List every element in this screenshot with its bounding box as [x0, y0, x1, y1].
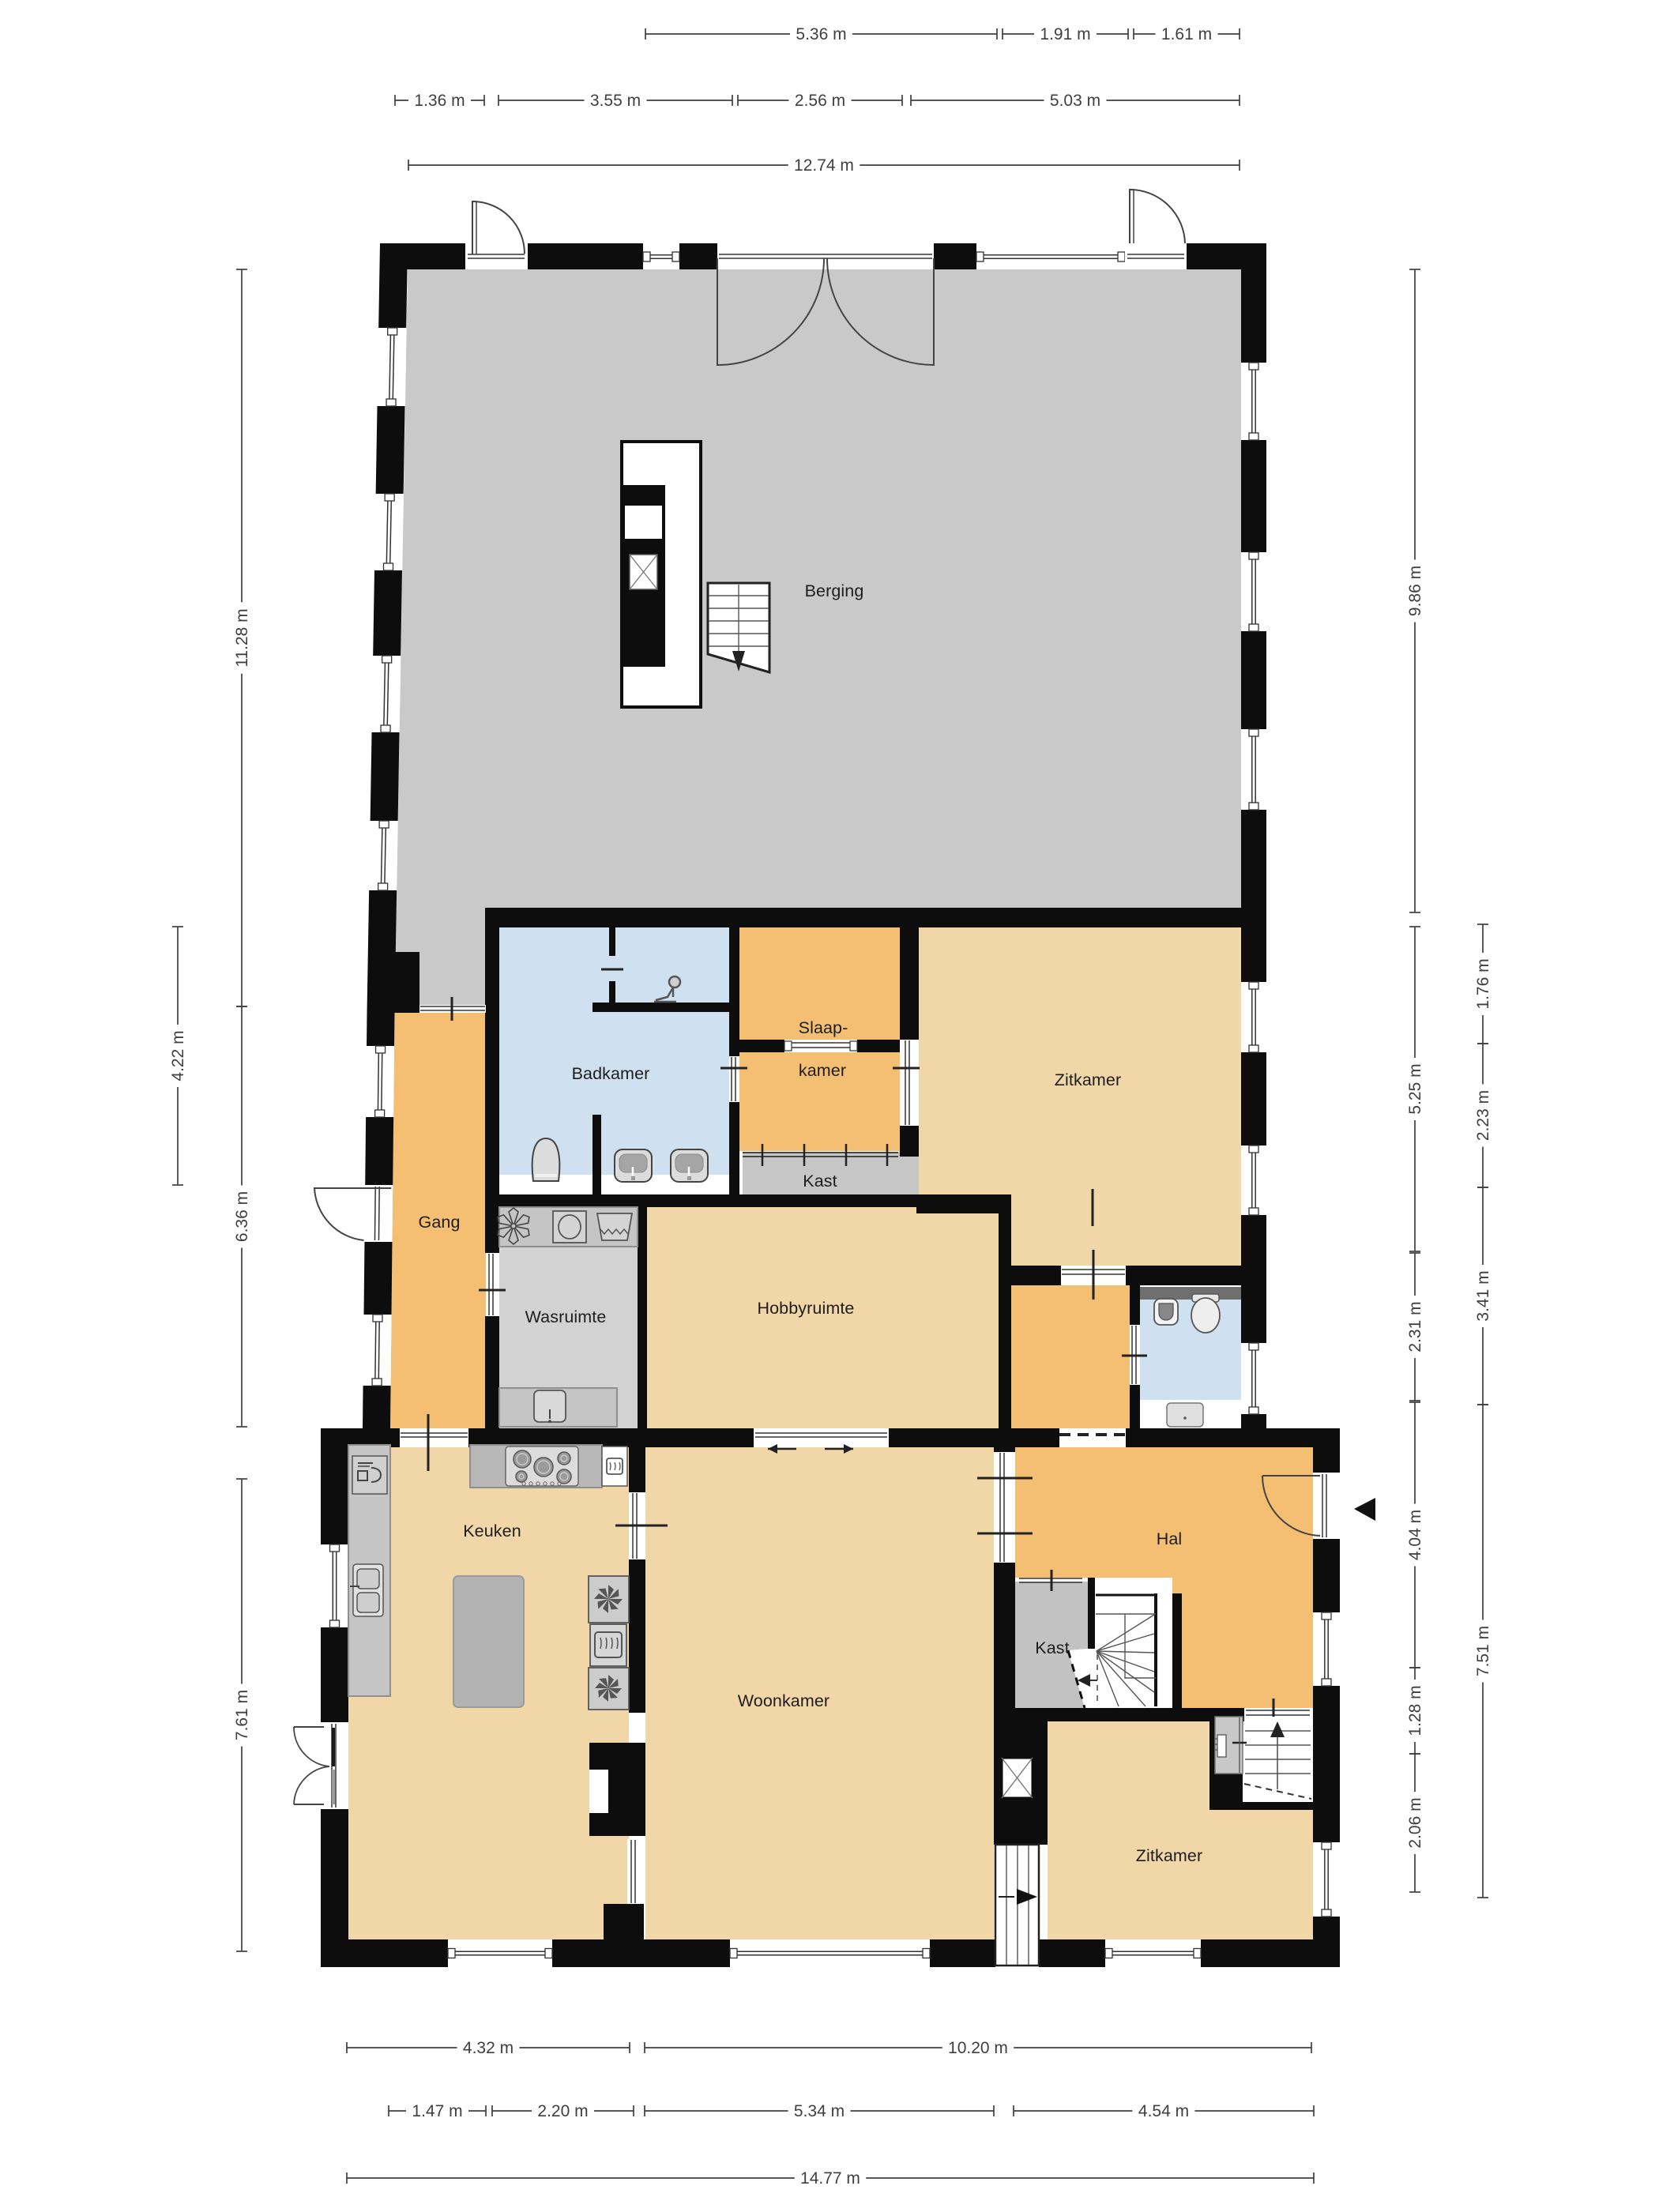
svg-text:2.06 m: 2.06 m [1406, 1797, 1424, 1848]
svg-text:11.28 m: 11.28 m [233, 608, 251, 667]
svg-text:5.34 m: 5.34 m [794, 2102, 845, 2120]
svg-text:14.77 m: 14.77 m [800, 2169, 860, 2188]
svg-text:Gang: Gang [419, 1213, 461, 1232]
svg-text:Wasruimte: Wasruimte [525, 1307, 607, 1326]
svg-text:Slaap-: Slaap- [799, 1018, 848, 1037]
svg-text:kamer: kamer [799, 1061, 846, 1080]
svg-text:Keuken: Keuken [463, 1522, 521, 1540]
svg-text:Hal: Hal [1157, 1529, 1183, 1548]
svg-text:Berging: Berging [805, 581, 864, 600]
svg-text:5.25 m: 5.25 m [1406, 1063, 1424, 1114]
svg-text:5.03 m: 5.03 m [1050, 92, 1100, 110]
svg-text:3.55 m: 3.55 m [590, 92, 641, 110]
svg-text:7.61 m: 7.61 m [233, 1690, 251, 1740]
svg-text:1.76 m: 1.76 m [1474, 958, 1492, 1009]
svg-text:1.36 m: 1.36 m [414, 92, 465, 110]
svg-text:5.36 m: 5.36 m [796, 25, 846, 43]
svg-text:2.31 m: 2.31 m [1406, 1301, 1424, 1352]
svg-text:6.36 m: 6.36 m [233, 1191, 251, 1242]
svg-text:Hobbyruimte: Hobbyruimte [758, 1299, 855, 1318]
svg-text:3.41 m: 3.41 m [1474, 1270, 1492, 1321]
svg-text:1.28 m: 1.28 m [1406, 1685, 1424, 1736]
svg-text:Kast: Kast [1035, 1638, 1069, 1657]
svg-text:7.51 m: 7.51 m [1474, 1626, 1492, 1676]
svg-text:Zitkamer: Zitkamer [1055, 1070, 1121, 1089]
svg-text:Kast: Kast [803, 1172, 837, 1191]
svg-text:4.32 m: 4.32 m [463, 2039, 513, 2057]
svg-text:Badkamer: Badkamer [572, 1064, 650, 1083]
svg-text:2.23 m: 2.23 m [1474, 1090, 1492, 1141]
svg-text:4.22 m: 4.22 m [169, 1030, 187, 1081]
svg-text:2.20 m: 2.20 m [537, 2102, 588, 2120]
svg-text:1.47 m: 1.47 m [412, 2102, 462, 2120]
svg-text:2.56 m: 2.56 m [795, 92, 845, 110]
svg-text:Woonkamer: Woonkamer [738, 1691, 829, 1710]
svg-text:4.54 m: 4.54 m [1138, 2102, 1189, 2120]
svg-text:1.61 m: 1.61 m [1161, 25, 1212, 43]
svg-text:Zitkamer: Zitkamer [1136, 1846, 1202, 1865]
svg-text:4.04 m: 4.04 m [1406, 1510, 1424, 1560]
svg-text:9.86 m: 9.86 m [1406, 566, 1424, 616]
svg-text:1.91 m: 1.91 m [1040, 25, 1090, 43]
svg-text:12.74 m: 12.74 m [794, 156, 854, 175]
svg-text:10.20 m: 10.20 m [948, 2039, 1008, 2057]
